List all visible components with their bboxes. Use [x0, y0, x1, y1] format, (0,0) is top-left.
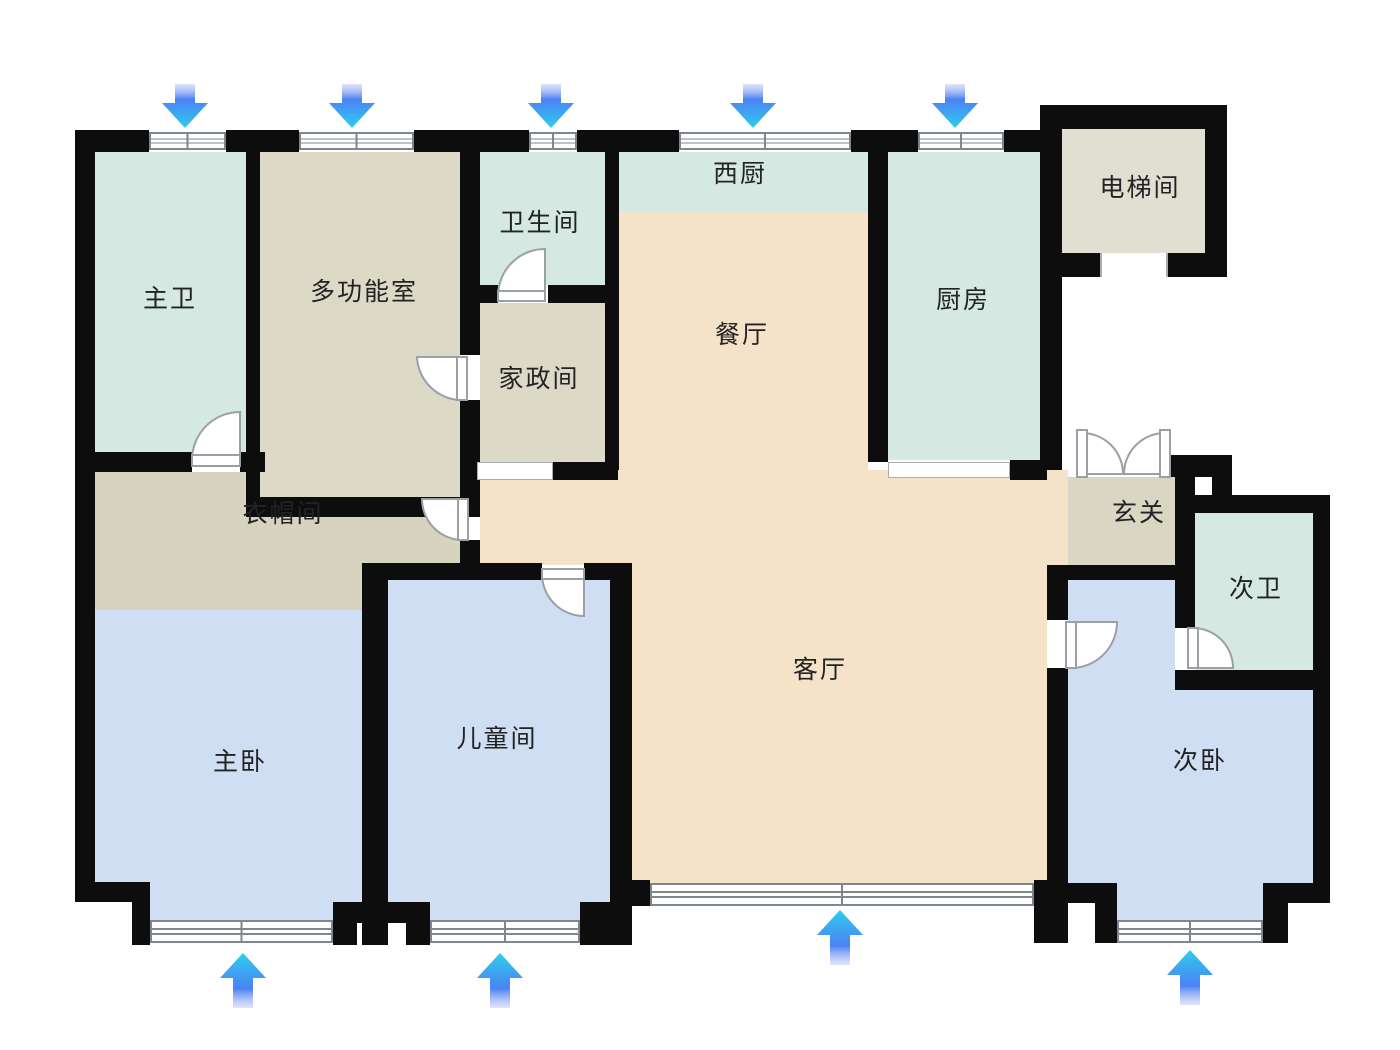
wind-arrow-down-icon	[329, 84, 375, 128]
multifunction-room-door-icon	[417, 357, 467, 400]
bathroom-door-icon	[498, 249, 545, 301]
second-bathroom-door-icon	[1188, 628, 1233, 668]
floorplan-canvas: 主卫 多功能室 卫生间 家政间 西厨 餐厅 厨房 电梯间 衣帽间 玄关 次卫 主…	[0, 0, 1400, 1050]
children-room-door-icon	[542, 569, 584, 616]
room-label-cloakroom: 衣帽间	[242, 494, 323, 530]
room-label-second-bathroom: 次卫	[1229, 569, 1283, 605]
room-label-kitchen: 厨房	[936, 280, 990, 316]
room-label-entry-hall: 玄关	[1112, 493, 1166, 529]
wind-arrow-up-icon	[817, 910, 863, 965]
wind-arrow-down-icon	[730, 84, 776, 128]
room-label-bathroom: 卫生间	[499, 203, 580, 239]
wind-arrow-up-icon	[220, 953, 266, 1008]
wind-arrow-up-icon	[1167, 950, 1213, 1005]
entry-double-door-icon	[1077, 430, 1170, 477]
room-label-dining-room: 餐厅	[715, 315, 769, 351]
wind-arrow-down-icon	[932, 84, 978, 128]
cloakroom-door-icon	[422, 499, 468, 540]
room-label-elevator-room: 电梯间	[1099, 168, 1180, 204]
room-label-west-kitchen: 西厨	[713, 154, 767, 190]
room-label-second-bedroom: 次卧	[1173, 741, 1227, 777]
wind-arrow-down-icon	[162, 84, 208, 128]
room-label-multifunction-room: 多功能室	[310, 272, 418, 308]
room-label-living-room: 客厅	[793, 650, 847, 686]
room-label-housekeeping-room: 家政间	[498, 359, 579, 395]
second-bedroom-door-icon	[1066, 622, 1117, 668]
room-label-children-room: 儿童间	[456, 719, 537, 755]
doors-and-arrows-layer	[0, 0, 1400, 1050]
master-bathroom-door-icon	[192, 412, 240, 466]
wind-arrow-down-icon	[528, 84, 574, 128]
wind-arrow-up-icon	[477, 953, 523, 1008]
room-label-master-bedroom: 主卧	[213, 742, 267, 778]
room-label-master-bathroom: 主卫	[143, 279, 197, 315]
